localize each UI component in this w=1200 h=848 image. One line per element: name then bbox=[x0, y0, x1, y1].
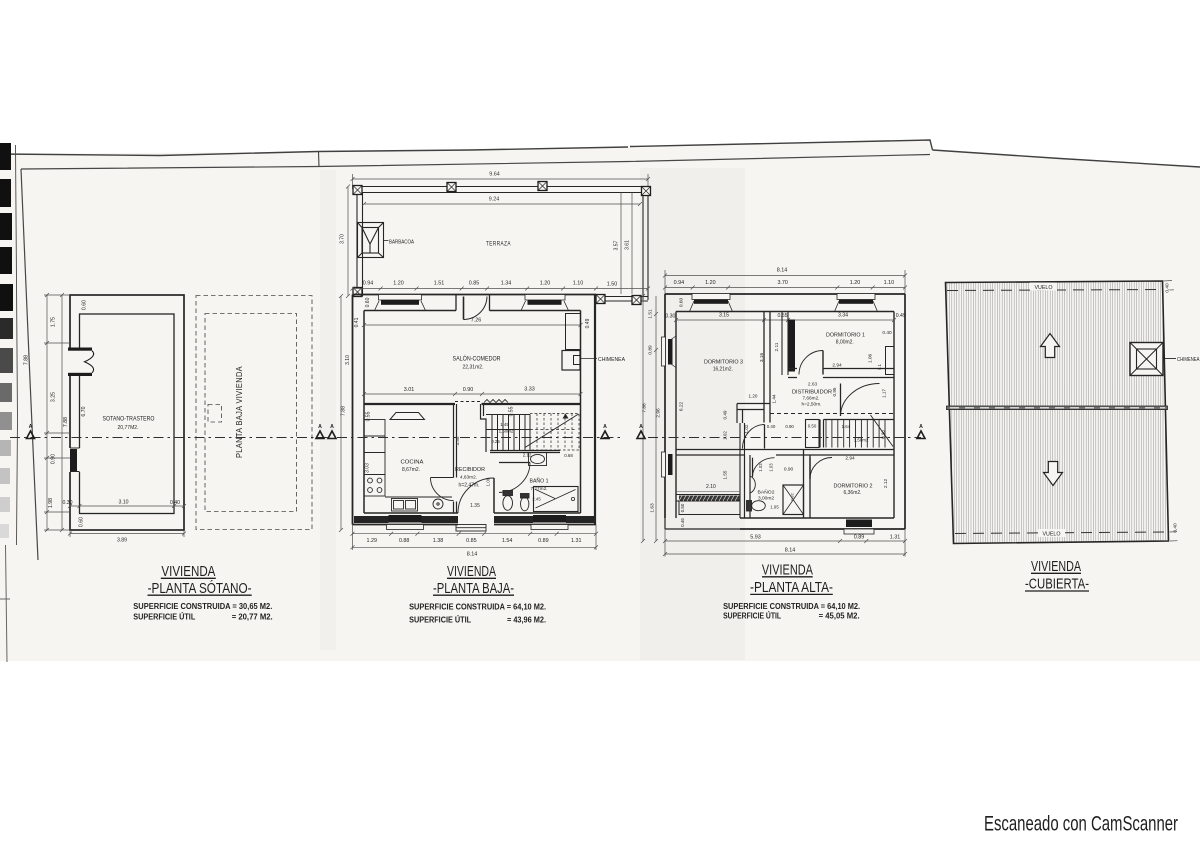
svg-text:0.55: 0.55 bbox=[777, 313, 787, 319]
svg-text:1.31: 1.31 bbox=[571, 538, 582, 544]
svg-text:1.34: 1.34 bbox=[501, 281, 512, 287]
svg-text:CHIMENEA: CHIMENEA bbox=[598, 357, 625, 363]
svg-text:VUELO: VUELO bbox=[1035, 285, 1053, 291]
svg-text:16,21m2.: 16,21m2. bbox=[713, 367, 733, 373]
svg-text:0.90: 0.90 bbox=[51, 454, 57, 464]
svg-text:-PLANTA SÓTANO-: -PLANTA SÓTANO- bbox=[148, 580, 252, 597]
svg-text:A: A bbox=[603, 424, 607, 430]
svg-text:1.31: 1.31 bbox=[890, 535, 901, 541]
svg-text:1.45: 1.45 bbox=[500, 422, 509, 427]
svg-text:8,67m2.: 8,67m2. bbox=[402, 467, 420, 473]
svg-text:7.26: 7.26 bbox=[471, 318, 482, 324]
svg-text:3.15: 3.15 bbox=[719, 313, 729, 319]
svg-text:20,77M2.: 20,77M2. bbox=[118, 425, 139, 431]
svg-text:7.88: 7.88 bbox=[642, 403, 648, 413]
svg-text:3.25: 3.25 bbox=[51, 392, 57, 402]
svg-text:-PLANTA ALTA-: -PLANTA ALTA- bbox=[750, 579, 833, 596]
svg-text:RECIBIDOR: RECIBIDOR bbox=[455, 467, 485, 473]
svg-text:0.40: 0.40 bbox=[170, 500, 180, 506]
svg-text:0.30: 0.30 bbox=[62, 500, 72, 506]
svg-text:0.49: 0.49 bbox=[723, 410, 728, 419]
svg-text:h=2,50m.: h=2,50m. bbox=[802, 402, 822, 408]
svg-text:A: A bbox=[29, 424, 33, 430]
svg-text:1.54: 1.54 bbox=[502, 538, 513, 544]
svg-text:-PLANTA BAJA-: -PLANTA BAJA- bbox=[433, 580, 514, 597]
svg-text:0,40: 0,40 bbox=[1173, 523, 1179, 533]
svg-text:BAÑO2: BAÑO2 bbox=[758, 489, 775, 496]
svg-text:1.98: 1.98 bbox=[48, 498, 54, 508]
svg-text:BARBACOA: BARBACOA bbox=[389, 240, 414, 246]
svg-text:SUPERFICIE CONSTRUIDA = 64,10: SUPERFICIE CONSTRUIDA = 64,10 M2. bbox=[409, 602, 546, 612]
svg-text:PLANTA BAJA VIVIENDA: PLANTA BAJA VIVIENDA bbox=[234, 366, 244, 458]
svg-text:SUPERFICIE ÚTIL: SUPERFICIE ÚTIL bbox=[409, 614, 471, 625]
svg-text:SUPERFICIE ÚTIL: SUPERFICIE ÚTIL bbox=[133, 611, 195, 622]
svg-text:0.40: 0.40 bbox=[767, 424, 776, 429]
svg-text:0.50: 0.50 bbox=[680, 503, 685, 512]
svg-text:0.82: 0.82 bbox=[790, 492, 795, 501]
svg-text:9.24: 9.24 bbox=[489, 197, 500, 203]
svg-text:1.64: 1.64 bbox=[842, 424, 851, 429]
svg-text:2.10: 2.10 bbox=[706, 484, 716, 490]
svg-text:1.95: 1.95 bbox=[770, 505, 779, 510]
svg-text:-CUBIERTA-: -CUBIERTA- bbox=[1025, 576, 1089, 593]
svg-text:3.34: 3.34 bbox=[838, 313, 848, 319]
svg-text:8.14: 8.14 bbox=[785, 548, 796, 554]
svg-text:1.10: 1.10 bbox=[884, 280, 895, 286]
svg-text:1.44: 1.44 bbox=[772, 394, 777, 403]
svg-text:3.89: 3.89 bbox=[117, 538, 127, 544]
svg-text:Escaneado con CamScanner: Escaneado con CamScanner bbox=[984, 812, 1178, 836]
svg-text:0.90: 0.90 bbox=[463, 387, 474, 393]
svg-text:0.60: 0.60 bbox=[679, 298, 685, 308]
svg-text:SUPERFICIE CONSTRUIDA = 30,65: SUPERFICIE CONSTRUIDA = 30,65 M2. bbox=[133, 601, 272, 611]
svg-text:1.20: 1.20 bbox=[749, 394, 758, 399]
svg-text:3.61: 3.61 bbox=[625, 240, 631, 250]
svg-text:0.85: 0.85 bbox=[469, 281, 480, 287]
svg-text:0.49: 0.49 bbox=[896, 313, 906, 319]
svg-text:A: A bbox=[919, 424, 923, 430]
svg-text:0.88: 0.88 bbox=[399, 538, 410, 544]
svg-text:3.16: 3.16 bbox=[759, 353, 765, 363]
svg-text:1.38: 1.38 bbox=[433, 538, 444, 544]
svg-text:0.95: 0.95 bbox=[832, 387, 837, 396]
svg-text:3.10: 3.10 bbox=[118, 500, 128, 506]
svg-text:6.22: 6.22 bbox=[679, 402, 685, 412]
svg-text:0.90: 0.90 bbox=[785, 424, 794, 429]
svg-text:0.89: 0.89 bbox=[854, 535, 865, 541]
svg-text:2.63: 2.63 bbox=[808, 382, 818, 388]
svg-text:1.20: 1.20 bbox=[393, 281, 404, 287]
svg-text:SALÓN-COMEDOR: SALÓN-COMEDOR bbox=[453, 356, 502, 363]
svg-text:2.96: 2.96 bbox=[656, 408, 662, 418]
svg-text:0.94: 0.94 bbox=[363, 281, 374, 287]
svg-text:VIVIENDA: VIVIENDA bbox=[1031, 558, 1081, 575]
svg-text:1.51: 1.51 bbox=[648, 309, 654, 319]
svg-text:6.70: 6.70 bbox=[81, 406, 87, 416]
svg-text:0.30: 0.30 bbox=[665, 314, 675, 320]
svg-text:= 20,77 M2.: = 20,77 M2. bbox=[232, 612, 273, 622]
svg-text:3.70: 3.70 bbox=[777, 280, 788, 286]
svg-text:0.49: 0.49 bbox=[585, 318, 591, 328]
svg-text:0.85: 0.85 bbox=[466, 538, 477, 544]
svg-text:8.14: 8.14 bbox=[467, 552, 478, 558]
svg-text:0,40: 0,40 bbox=[1165, 283, 1171, 293]
svg-text:SUPERFICIE CONSTRUIDA = 64,10: SUPERFICIE CONSTRUIDA = 64,10 M2. bbox=[723, 601, 860, 611]
svg-text:3.03: 3.03 bbox=[365, 463, 371, 473]
svg-text:5.1: 5.1 bbox=[877, 363, 882, 369]
svg-text:0.60: 0.60 bbox=[365, 297, 371, 307]
svg-text:0.60: 0.60 bbox=[79, 517, 85, 527]
svg-text:1.55: 1.55 bbox=[723, 470, 728, 479]
svg-text:1.35: 1.35 bbox=[470, 503, 480, 509]
svg-text:= 45,05 M2.: = 45,05 M2. bbox=[819, 611, 860, 621]
svg-text:0.25: 0.25 bbox=[491, 439, 500, 444]
svg-text:3.10: 3.10 bbox=[345, 355, 351, 365]
svg-text:6,36m2.: 6,36m2. bbox=[844, 490, 862, 496]
svg-text:0.41: 0.41 bbox=[354, 317, 360, 327]
svg-text:1.10: 1.10 bbox=[573, 281, 584, 287]
svg-text:2.45: 2.45 bbox=[532, 497, 541, 502]
svg-text:1.75: 1.75 bbox=[51, 317, 57, 327]
svg-text:0.46: 0.46 bbox=[680, 518, 685, 527]
svg-text:0.94: 0.94 bbox=[674, 280, 685, 286]
svg-text:5.93: 5.93 bbox=[750, 535, 761, 541]
svg-text:8.14: 8.14 bbox=[777, 268, 788, 274]
svg-text:VIVIENDA: VIVIENDA bbox=[161, 563, 215, 580]
svg-text:1.63: 1.63 bbox=[650, 503, 656, 513]
svg-text:A: A bbox=[318, 424, 322, 430]
svg-text:1.03: 1.03 bbox=[758, 463, 763, 472]
svg-text:1.29: 1.29 bbox=[367, 538, 378, 544]
svg-text:CHIMENEA: CHIMENEA bbox=[1177, 357, 1200, 363]
svg-text:DORMITORIO 2: DORMITORIO 2 bbox=[834, 484, 873, 490]
svg-text:3.57: 3.57 bbox=[614, 240, 620, 250]
svg-text:2.12: 2.12 bbox=[883, 479, 889, 489]
svg-text:3.33: 3.33 bbox=[524, 387, 535, 393]
svg-text:1.20: 1.20 bbox=[540, 281, 551, 287]
svg-text:DORMITORIO 3: DORMITORIO 3 bbox=[704, 360, 743, 366]
svg-text:VUELO: VUELO bbox=[1043, 532, 1061, 538]
svg-text:7,66m2.: 7,66m2. bbox=[803, 396, 820, 401]
svg-text:0.68: 0.68 bbox=[564, 453, 573, 458]
svg-text:0.50: 0.50 bbox=[808, 424, 817, 429]
svg-text:7.88: 7.88 bbox=[63, 417, 69, 427]
svg-text:9.64: 9.64 bbox=[489, 172, 500, 178]
svg-text:1.06: 1.06 bbox=[868, 354, 874, 364]
svg-text:VIVIENDA: VIVIENDA bbox=[762, 562, 813, 579]
svg-text:A: A bbox=[330, 424, 334, 430]
svg-text:1.20: 1.20 bbox=[850, 280, 861, 286]
svg-text:2.94: 2.94 bbox=[845, 456, 855, 462]
svg-text:BAÑO 1: BAÑO 1 bbox=[530, 478, 549, 485]
svg-text:1.17: 1.17 bbox=[882, 389, 887, 398]
svg-text:VIVIENDA: VIVIENDA bbox=[447, 563, 496, 580]
svg-text:= 43,96 M2.: = 43,96 M2. bbox=[507, 615, 546, 625]
svg-text:2.94: 2.94 bbox=[832, 363, 842, 369]
svg-text:1.50: 1.50 bbox=[607, 282, 618, 288]
svg-text:1.51: 1.51 bbox=[434, 281, 445, 287]
svg-text:4,63m2.: 4,63m2. bbox=[460, 475, 477, 481]
svg-text:1,50m2: 1,50m2 bbox=[854, 438, 869, 443]
svg-text:0.90: 0.90 bbox=[784, 467, 794, 473]
svg-text:22,31m2.: 22,31m2. bbox=[463, 365, 484, 371]
svg-text:1,50m2: 1,50m2 bbox=[499, 429, 514, 434]
svg-text:DORMITORIO 1: DORMITORIO 1 bbox=[826, 333, 865, 339]
svg-text:1.20: 1.20 bbox=[705, 280, 716, 286]
svg-text:7,27m2.: 7,27m2. bbox=[531, 486, 548, 492]
svg-text:3.01: 3.01 bbox=[404, 387, 415, 393]
svg-text:2.12: 2.12 bbox=[523, 453, 532, 458]
svg-text:2.11: 2.11 bbox=[774, 342, 780, 351]
svg-text:A: A bbox=[639, 424, 643, 430]
svg-text:SUPERFICIE ÚTIL: SUPERFICIE ÚTIL bbox=[723, 610, 781, 621]
svg-text:SOTANO-TRASTERO: SOTANO-TRASTERO bbox=[103, 416, 155, 423]
svg-text:8,00m2.: 8,00m2. bbox=[836, 340, 854, 346]
svg-text:0.40: 0.40 bbox=[882, 330, 892, 336]
svg-text:0.89: 0.89 bbox=[538, 538, 549, 544]
svg-text:1.03: 1.03 bbox=[769, 463, 774, 472]
svg-text:1.02: 1.02 bbox=[723, 431, 728, 440]
svg-text:COCINA: COCINA bbox=[401, 460, 424, 466]
svg-text:7.88: 7.88 bbox=[341, 406, 347, 416]
svg-text:TERRAZA: TERRAZA bbox=[486, 241, 511, 248]
svg-text:0.89: 0.89 bbox=[648, 345, 654, 355]
svg-text:3,00m2: 3,00m2 bbox=[758, 496, 775, 501]
svg-text:3.70: 3.70 bbox=[340, 234, 346, 244]
svg-text:7.88: 7.88 bbox=[24, 355, 30, 365]
svg-text:0.60: 0.60 bbox=[82, 300, 88, 310]
